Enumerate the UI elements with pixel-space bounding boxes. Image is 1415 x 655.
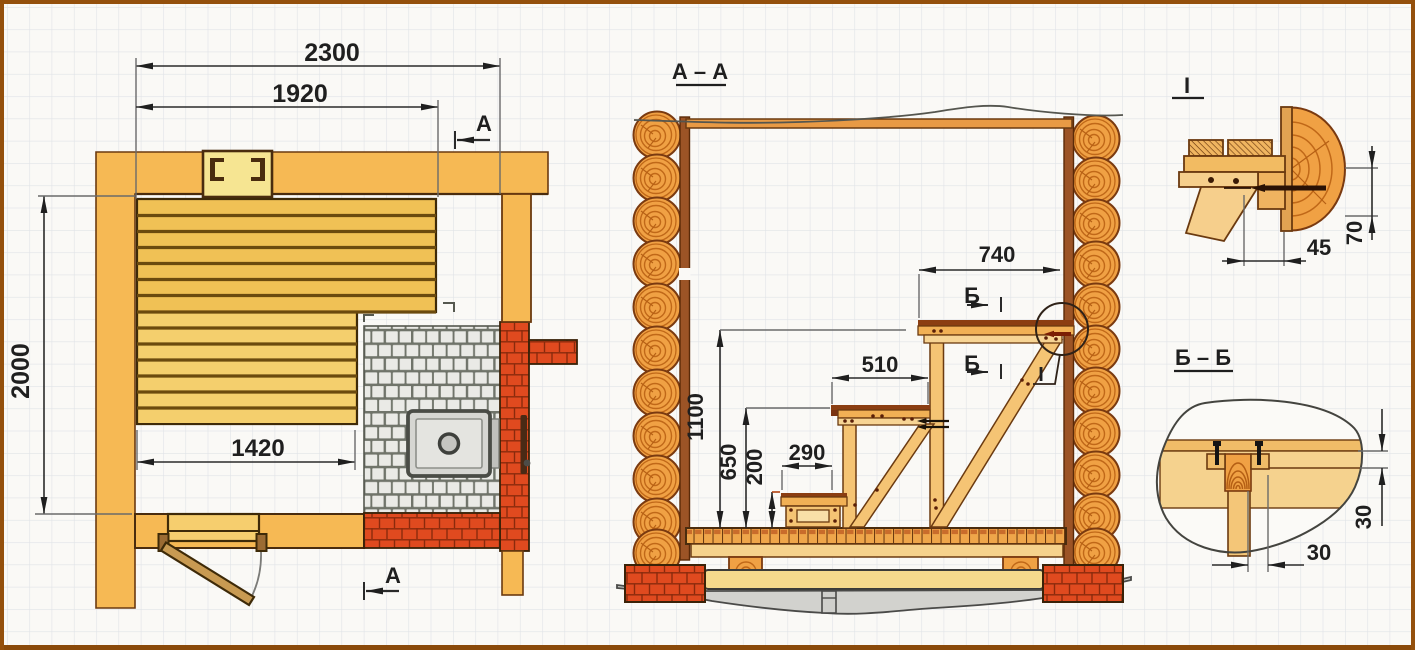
svg-text:2300: 2300 bbox=[304, 39, 360, 67]
svg-text:650: 650 bbox=[716, 444, 741, 481]
svg-text:А – А: А – А bbox=[672, 59, 728, 84]
svg-text:45: 45 bbox=[1307, 235, 1331, 260]
svg-text:290: 290 bbox=[789, 440, 826, 465]
svg-text:200: 200 bbox=[742, 449, 767, 486]
svg-text:I: I bbox=[1038, 364, 1044, 386]
svg-text:A: A bbox=[385, 563, 401, 588]
svg-text:Б: Б bbox=[964, 351, 980, 376]
svg-text:Б: Б bbox=[964, 283, 980, 308]
svg-text:30: 30 bbox=[1351, 505, 1376, 529]
svg-text:30: 30 bbox=[1307, 540, 1331, 565]
svg-text:2000: 2000 bbox=[7, 343, 35, 399]
svg-text:1420: 1420 bbox=[231, 435, 284, 462]
svg-text:1100: 1100 bbox=[683, 393, 708, 441]
svg-text:A: A bbox=[476, 111, 492, 136]
svg-text:70: 70 bbox=[1342, 221, 1367, 245]
svg-text:740: 740 bbox=[979, 242, 1016, 267]
svg-text:Б – Б: Б – Б bbox=[1175, 345, 1231, 370]
svg-text:1920: 1920 bbox=[272, 80, 328, 108]
svg-text:I: I bbox=[1184, 73, 1190, 98]
svg-text:510: 510 bbox=[862, 352, 899, 377]
